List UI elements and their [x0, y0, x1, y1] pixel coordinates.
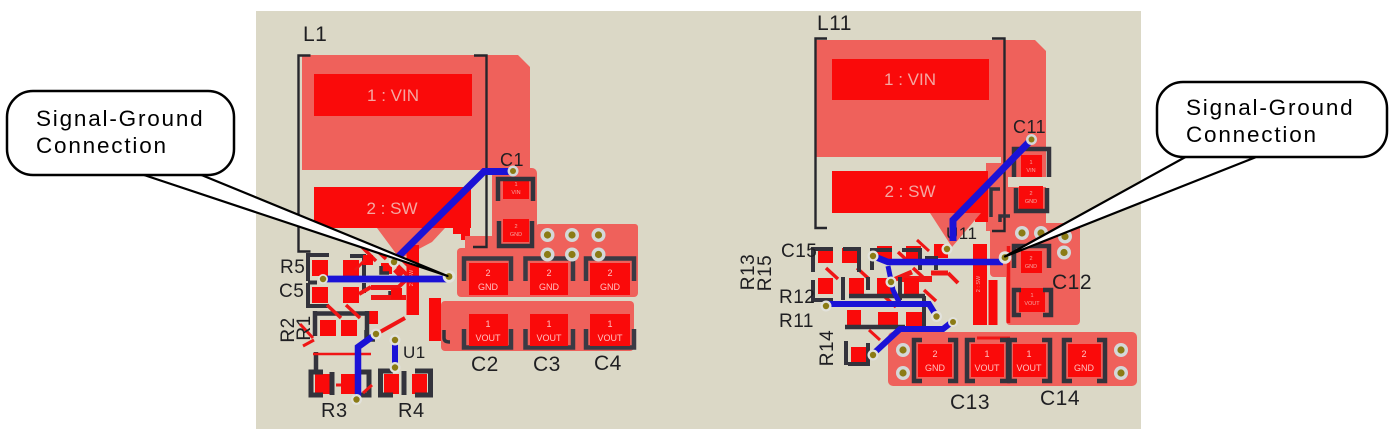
svg-text:GND: GND — [510, 232, 522, 238]
svg-text:2: 2 — [1081, 349, 1086, 359]
svg-text:GND: GND — [539, 282, 560, 292]
svg-text:C15: C15 — [781, 241, 817, 262]
svg-text:2: 2 — [932, 349, 937, 359]
svg-text:GND: GND — [925, 363, 946, 373]
svg-text:R11: R11 — [779, 311, 814, 332]
svg-text:GND: GND — [1074, 363, 1095, 373]
svg-text:L1: L1 — [303, 23, 327, 46]
svg-text:Signal-Ground: Signal-Ground — [1186, 95, 1355, 120]
svg-text:C13: C13 — [950, 391, 990, 414]
svg-text:C12: C12 — [1052, 271, 1092, 294]
svg-text:C4: C4 — [594, 352, 622, 375]
svg-text:VOUT: VOUT — [1024, 301, 1040, 307]
svg-text:VIN: VIN — [511, 190, 520, 196]
svg-text:2: 2 — [607, 268, 612, 278]
svg-text:2 : SW: 2 : SW — [884, 182, 935, 201]
svg-text:1: 1 — [607, 319, 612, 329]
svg-text:1: 1 — [1029, 160, 1032, 166]
svg-text:U1: U1 — [403, 343, 426, 362]
svg-text:Connection: Connection — [1186, 122, 1318, 147]
svg-text:1 : VIN: 1 : VIN — [884, 70, 936, 89]
svg-text:2: 2 — [546, 268, 551, 278]
svg-text:GND: GND — [1025, 264, 1037, 270]
svg-text:R1: R1 — [294, 315, 315, 340]
svg-text:C2: C2 — [471, 353, 499, 376]
svg-text:VOUT: VOUT — [536, 333, 562, 343]
svg-text:GND: GND — [600, 282, 621, 292]
svg-text:2: 2 — [514, 224, 517, 230]
svg-text:R3: R3 — [321, 400, 348, 422]
svg-text:C5: C5 — [279, 281, 304, 302]
svg-text:1: 1 — [984, 349, 989, 359]
svg-text:2: 2 — [485, 268, 490, 278]
svg-text:1: 1 — [546, 319, 551, 329]
svg-text:GND: GND — [1025, 199, 1037, 205]
svg-text:1: 1 — [1030, 293, 1033, 299]
svg-text:2: 2 — [1029, 191, 1032, 197]
svg-text:1: 1 — [485, 319, 490, 329]
svg-text:C11: C11 — [1013, 117, 1046, 137]
svg-text:C14: C14 — [1040, 387, 1080, 410]
svg-text:VIN: VIN — [1026, 168, 1035, 174]
svg-text:R15: R15 — [755, 255, 776, 291]
svg-text:2 : SW: 2 : SW — [976, 275, 982, 292]
svg-text:2 : SW: 2 : SW — [366, 199, 417, 218]
svg-text:Connection: Connection — [36, 133, 168, 158]
svg-text:VOUT: VOUT — [597, 333, 623, 343]
svg-text:C3: C3 — [533, 353, 561, 376]
svg-text:Signal-Ground: Signal-Ground — [36, 106, 205, 131]
svg-text:VOUT: VOUT — [475, 333, 501, 343]
svg-text:VOUT: VOUT — [974, 363, 1000, 373]
svg-text:R5: R5 — [280, 257, 305, 278]
svg-text:1: 1 — [514, 182, 517, 188]
svg-text:R14: R14 — [817, 330, 838, 366]
svg-text:2: 2 — [1029, 256, 1032, 262]
svg-text:R12: R12 — [779, 287, 815, 308]
svg-text:R4: R4 — [398, 400, 425, 422]
svg-text:VOUT: VOUT — [1016, 363, 1042, 373]
svg-text:1 : VIN: 1 : VIN — [367, 86, 419, 105]
svg-text:1: 1 — [1026, 349, 1031, 359]
svg-text:L11: L11 — [817, 12, 852, 35]
svg-text:GND: GND — [478, 282, 499, 292]
